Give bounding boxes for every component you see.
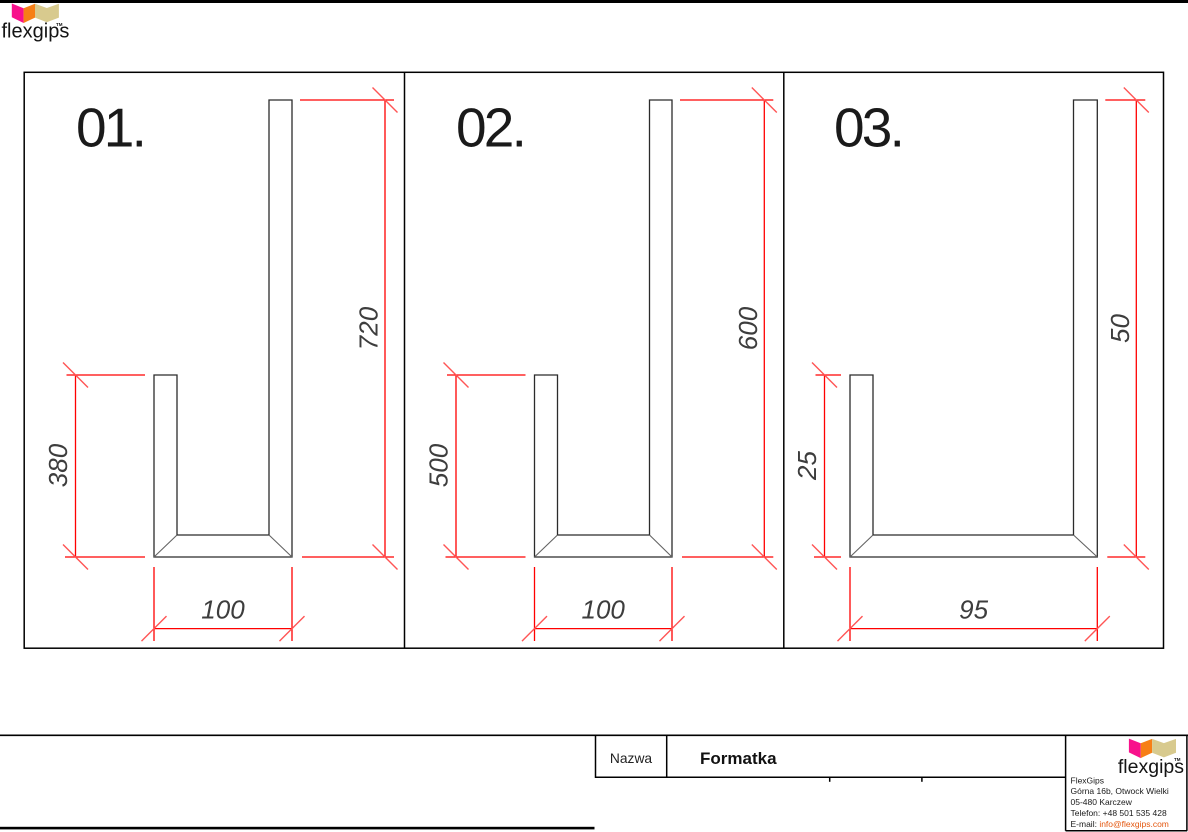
svg-text:03.: 03. (834, 97, 902, 159)
svg-text:720: 720 (354, 306, 384, 350)
svg-text:Telefon: +48 501 535 428: Telefon: +48 501 535 428 (1071, 808, 1167, 818)
svg-text:Formatka: Formatka (700, 749, 777, 768)
svg-text:100: 100 (201, 595, 245, 625)
svg-text:95: 95 (959, 595, 988, 625)
svg-text:100: 100 (582, 595, 626, 625)
svg-text:01.: 01. (76, 97, 144, 159)
svg-text:TM: TM (1174, 757, 1181, 762)
svg-text:FlexGips: FlexGips (1071, 776, 1105, 786)
svg-text:E-mail: info@flexgips.com: E-mail: info@flexgips.com (1071, 819, 1169, 829)
svg-text:500: 500 (424, 443, 454, 487)
svg-text:Górna 16b, Otwock Wielki: Górna 16b, Otwock Wielki (1071, 786, 1169, 796)
svg-text:TM: TM (56, 22, 63, 27)
svg-text:25: 25 (792, 451, 822, 481)
svg-text:380: 380 (43, 443, 73, 487)
svg-text:02.: 02. (456, 97, 524, 159)
svg-text:Nazwa: Nazwa (610, 751, 652, 766)
svg-text:05-480 Karczew: 05-480 Karczew (1071, 797, 1133, 807)
svg-text:50: 50 (1105, 314, 1135, 343)
svg-text:600: 600 (733, 306, 763, 350)
